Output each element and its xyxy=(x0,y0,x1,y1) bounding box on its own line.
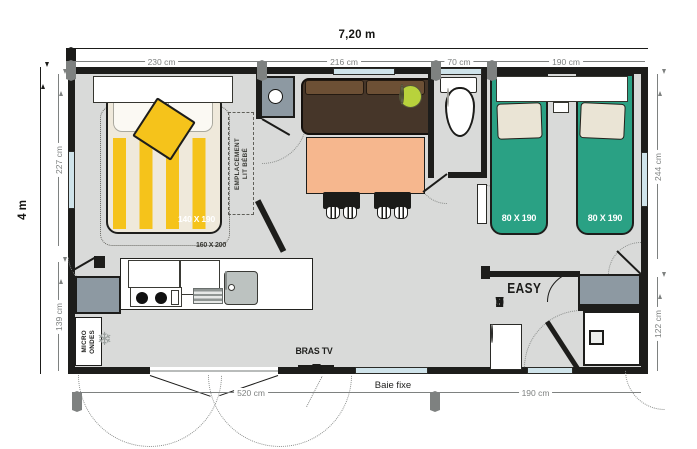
dim-top-seg4: 190 cm xyxy=(487,61,645,62)
chair-right-foot xyxy=(377,206,391,219)
dim-left-seg1: 227 cm xyxy=(58,74,59,246)
fridge-snowflake-icon: ❄ xyxy=(97,330,112,348)
stove-burner-icon xyxy=(136,292,148,304)
dim-bottom-seg1: 520 cm xyxy=(72,392,430,393)
dim-top-seg3: 70 cm xyxy=(431,61,487,62)
kitchen-cabinet xyxy=(128,260,180,288)
patio-door-threshold xyxy=(150,370,278,372)
window-left-master xyxy=(68,151,75,209)
dim-top-seg2: 216 cm xyxy=(257,61,431,62)
microwave-label-line1: MICRO xyxy=(81,330,88,353)
baie-fixe-label: Baie fixe xyxy=(362,380,424,391)
bathroom-door-panel xyxy=(490,324,522,370)
shower-drain-icon xyxy=(589,330,604,345)
baby-bed-zone-label-line2: LIT BÉBÉ xyxy=(242,148,249,179)
gas-point-icon xyxy=(268,89,283,104)
table-lamp-icon xyxy=(399,85,422,108)
sofa-cushion-left xyxy=(305,80,364,95)
twin-bed-left-size-label: 80 X 190 xyxy=(490,213,548,223)
dim-total-height-label: 4 m xyxy=(17,200,29,220)
bathroom-vanity xyxy=(578,274,641,306)
stove-burner-icon xyxy=(155,292,167,304)
dim-bottom-seg2: 190 cm xyxy=(430,392,641,393)
wall-twinroom-left xyxy=(481,74,487,178)
chair-left-foot xyxy=(343,206,357,219)
water-heater-unit xyxy=(258,76,295,118)
dim-right-seg1: 244 cm xyxy=(657,74,658,259)
window-bottom-hall xyxy=(527,367,573,374)
twin-pillow-right xyxy=(579,102,626,140)
wall-wc-left xyxy=(428,74,434,178)
master-bed-size-label: 140 X 190 xyxy=(178,214,215,224)
mobile-home-floorplan: 140 X 190 160 X 200 EMPLACEMENT LIT BÉBÉ… xyxy=(0,0,697,449)
dim-total-height-line xyxy=(40,67,41,374)
dim-total-width-label: 7,20 m xyxy=(66,29,648,41)
twin-nightstand xyxy=(553,102,569,113)
wall-bathroom-top xyxy=(484,271,580,277)
dining-table xyxy=(306,137,425,194)
dim-top-seg1: 230 cm xyxy=(66,61,257,62)
microwave-label-line2: ONDES xyxy=(89,330,96,354)
twin-headboard-shelf xyxy=(496,76,628,102)
stove xyxy=(130,287,182,307)
chair-right-foot xyxy=(394,206,408,219)
wall-under-vanity xyxy=(578,306,641,311)
twin-bed-right-size-label: 80 X 190 xyxy=(576,213,634,223)
dim-total-width-line xyxy=(66,48,648,49)
twin-pillow-left xyxy=(496,102,542,140)
baby-bed-zone: EMPLACEMENT LIT BÉBÉ xyxy=(228,112,254,215)
chair-left-foot xyxy=(326,206,340,219)
window-right-twin xyxy=(641,152,648,207)
easy-clean-logo: EASY CLEAN xyxy=(495,283,541,295)
kitchen-tall-cabinet xyxy=(75,276,121,314)
faucet-icon xyxy=(228,284,235,291)
drainboard xyxy=(193,288,223,304)
dim-right-seg2: 122 cm xyxy=(657,277,658,371)
stove-controls xyxy=(171,290,179,305)
twin-door-panel xyxy=(477,184,487,224)
baby-bed-zone-label-line1: EMPLACEMENT xyxy=(234,138,241,190)
dim-left-seg2: 139 cm xyxy=(58,262,59,371)
master-headboard xyxy=(93,76,233,103)
easy-clean-line1: EASY xyxy=(507,283,541,295)
tv-bracket-label: BRAS TV xyxy=(288,346,340,357)
bed-zone-size-label: 160 X 200 xyxy=(176,242,246,249)
window-top-living xyxy=(333,68,395,75)
window-baie-fixe xyxy=(355,367,428,374)
